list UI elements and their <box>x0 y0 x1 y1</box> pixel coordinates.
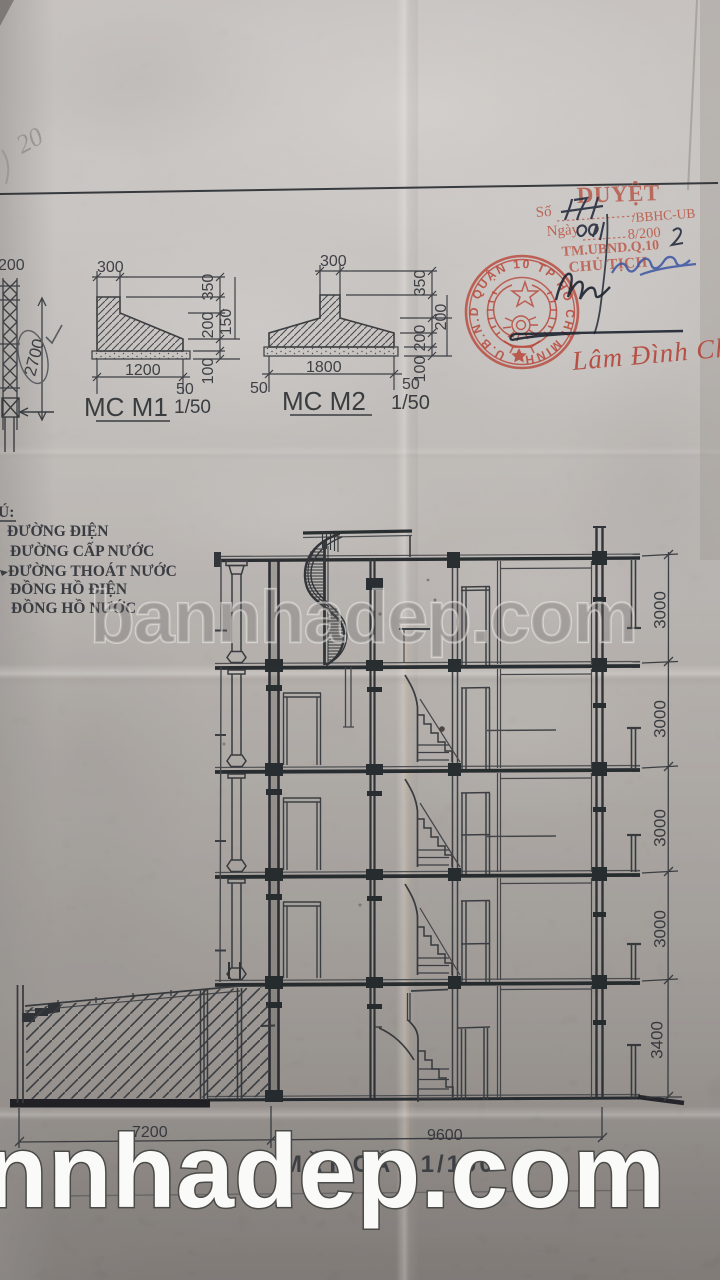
svg-text:1/50: 1/50 <box>391 392 430 414</box>
svg-text:50: 50 <box>176 381 194 398</box>
svg-text:Số: Số <box>535 204 552 221</box>
svg-text:DUYỆT: DUYỆT <box>576 180 660 208</box>
svg-text:150: 150 <box>218 309 235 336</box>
svg-text:350: 350 <box>412 270 429 297</box>
svg-text:350: 350 <box>200 274 217 301</box>
svg-text:50: 50 <box>250 380 268 397</box>
svg-text:MC M2: MC M2 <box>282 386 366 416</box>
svg-text:ĐƯỜNG ĐIỆN: ĐƯỜNG ĐIỆN <box>7 523 108 540</box>
svg-text:200: 200 <box>433 304 450 331</box>
svg-text:200: 200 <box>412 325 429 352</box>
svg-text:200: 200 <box>0 257 25 274</box>
svg-text:1/50: 1/50 <box>174 397 211 418</box>
svg-text:100: 100 <box>412 356 429 383</box>
svg-text:bannhadep.com: bannhadep.com <box>90 577 637 658</box>
svg-text:200: 200 <box>200 312 217 339</box>
svg-text:3000: 3000 <box>650 910 669 948</box>
svg-text:300: 300 <box>320 253 347 270</box>
svg-text:3400: 3400 <box>647 1021 666 1059</box>
svg-text:nnhadep.com: nnhadep.com <box>0 1114 666 1230</box>
svg-text:3000: 3000 <box>650 700 669 738</box>
svg-text:1200: 1200 <box>125 362 161 379</box>
svg-text:Ú:: Ú: <box>0 504 14 521</box>
svg-text:3000: 3000 <box>650 591 669 629</box>
svg-text:300: 300 <box>97 259 124 276</box>
svg-text:ĐƯỜNG CẤP NƯỚC: ĐƯỜNG CẤP NƯỚC <box>10 542 154 560</box>
svg-text:MC M1: MC M1 <box>84 392 168 422</box>
svg-text:100: 100 <box>200 358 217 385</box>
svg-text:1800: 1800 <box>306 359 342 376</box>
svg-text:3000: 3000 <box>650 809 669 847</box>
svg-text:Ngày: Ngày <box>546 222 580 240</box>
